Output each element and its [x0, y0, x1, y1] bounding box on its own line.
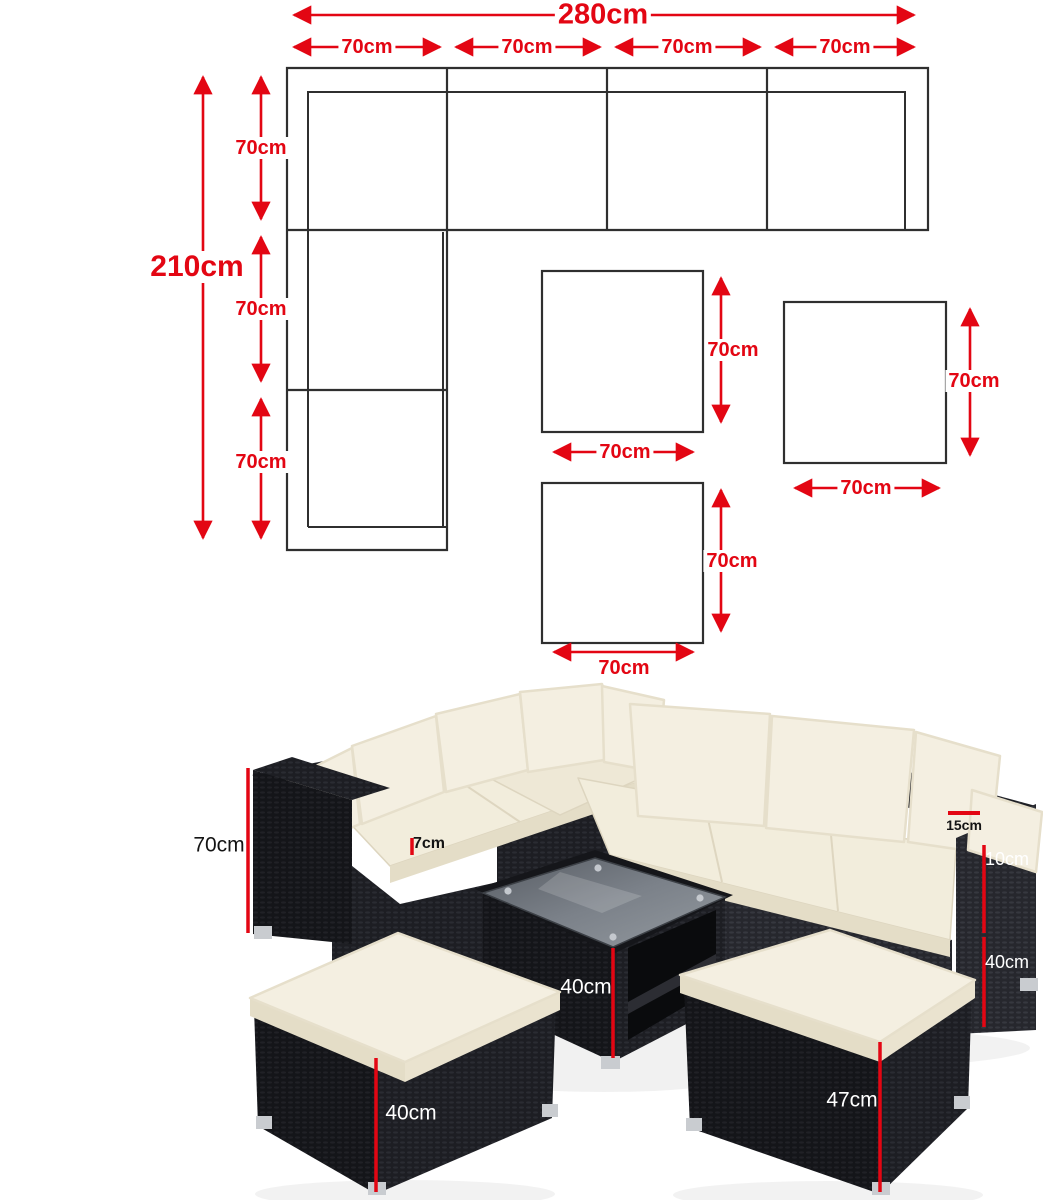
- width-seg-4-label: 70cm: [816, 36, 873, 58]
- height-seg-3-label: 70cm: [232, 451, 289, 473]
- small-ottoman-foot-right: [542, 1104, 558, 1117]
- right-armrest-foot: [1020, 978, 1038, 991]
- square-module-1: [542, 271, 703, 432]
- width-seg-3-label: 70cm: [658, 36, 715, 58]
- lounge-set-illustration: [248, 684, 1042, 1200]
- armrest-depth-label: 10cm: [985, 850, 1029, 868]
- square-module-3: [542, 483, 703, 643]
- square-module-2: [784, 302, 946, 463]
- sofa-outline-inner-bottom: [308, 232, 446, 527]
- square3-height-label: 70cm: [703, 550, 760, 572]
- dimension-sheet-graphics: [0, 0, 1043, 1200]
- square1-height-label: 70cm: [704, 339, 761, 361]
- total-height-label: 210cm: [147, 251, 246, 283]
- pillow-right-2: [766, 716, 914, 842]
- back-cushion-label: 15cm: [946, 818, 982, 832]
- table-front-foot: [601, 1056, 620, 1069]
- large-ottoman-foot-right: [954, 1096, 970, 1109]
- width-seg-1-label: 70cm: [338, 36, 395, 58]
- product-dimension-sheet: 280cm 70cm 70cm 70cm 70cm 210cm 70cm 70c…: [0, 0, 1043, 1200]
- height-seg-2-label: 70cm: [232, 298, 289, 320]
- table-height-label: 40cm: [560, 977, 611, 998]
- height-seg-1-label: 70cm: [232, 137, 289, 159]
- large-ottoman-foot-left: [686, 1118, 702, 1131]
- pillow-right-1: [630, 704, 770, 826]
- square2-height-label: 70cm: [945, 370, 1002, 392]
- seat-cushion-label: 7cm: [413, 836, 445, 852]
- square1-width-label: 70cm: [596, 441, 653, 463]
- small-ottoman-height-label: 40cm: [385, 1103, 436, 1124]
- pillow-corner-1: [520, 684, 608, 772]
- square3-width-label: 70cm: [595, 657, 652, 679]
- seat-height-label: 40cm: [985, 953, 1029, 971]
- diagram-dimension-arrows: [203, 15, 970, 652]
- sofa-height-label: 70cm: [193, 835, 244, 856]
- square2-width-label: 70cm: [837, 477, 894, 499]
- left-armrest-face: [253, 770, 352, 944]
- large-ottoman: [680, 930, 975, 1195]
- floor-plan-diagram: [287, 68, 946, 643]
- total-width-label: 280cm: [555, 0, 651, 31]
- small-ottoman-foot-left: [256, 1116, 272, 1129]
- width-seg-2-label: 70cm: [498, 36, 555, 58]
- left-armrest-foot: [254, 926, 272, 939]
- large-ottoman-height-label: 47cm: [826, 1090, 877, 1111]
